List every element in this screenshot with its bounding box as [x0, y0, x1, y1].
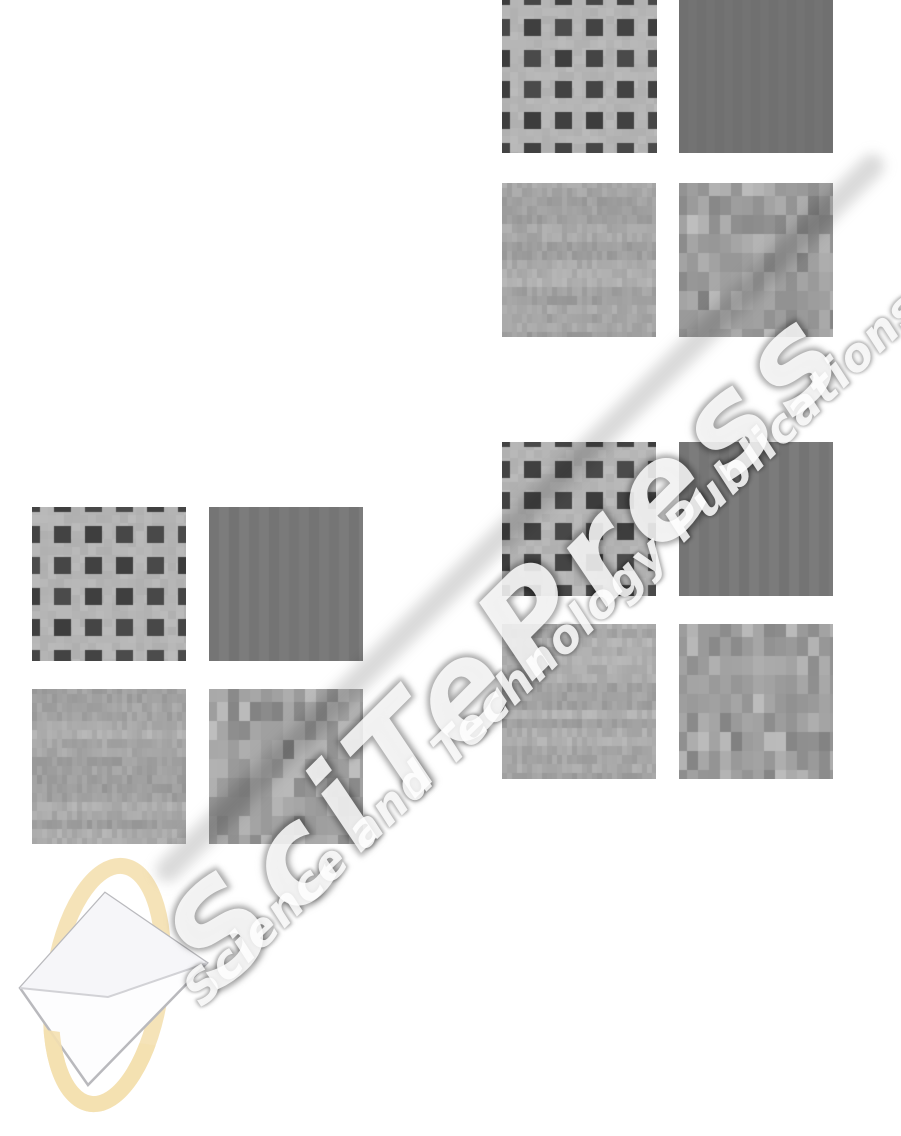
patch-left-stripes: [209, 507, 363, 661]
patch-middleright-checkerboard: [502, 442, 656, 596]
patch-left-checkerboard: [32, 507, 186, 661]
patch-left-fine-noise: [32, 689, 186, 844]
patch-middleright-block-noise: [679, 624, 833, 779]
patch-topright-checkerboard: [502, 0, 657, 153]
patch-topright-uniform-gray: [679, 0, 833, 153]
patch-middleright-stripes: [679, 442, 833, 596]
patch-middleright-fine-noise: [502, 624, 656, 779]
patch-topright-fine-noise: [502, 183, 656, 337]
patch-topright-block-noise: [679, 183, 833, 337]
paper-page: { "page": { "width": 901, "height": 1136…: [0, 0, 901, 1136]
scitepress-logo: [8, 842, 218, 1122]
patch-left-block-noise: [209, 689, 363, 844]
